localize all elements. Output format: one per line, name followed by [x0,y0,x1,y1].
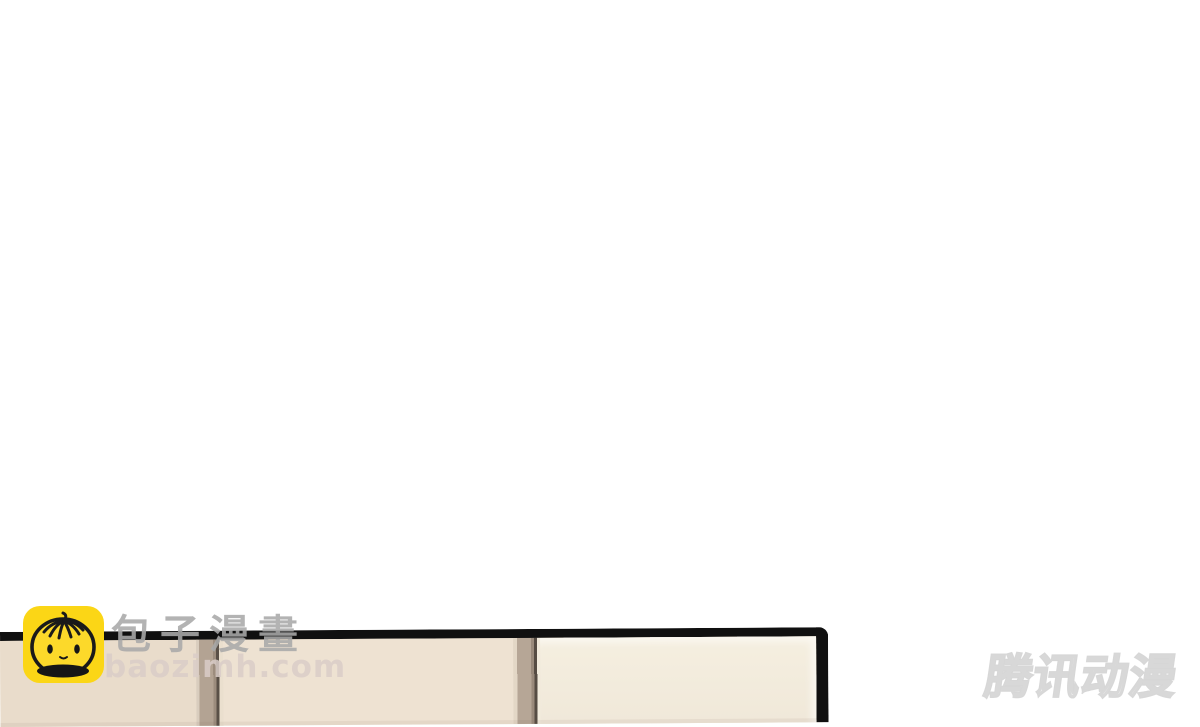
baozi-bun-icon [23,606,104,683]
panel-divider-right [513,638,540,724]
publisher-watermark: 腾讯动漫 [981,638,1183,707]
site-domain-watermark: baozimh.com [104,649,346,685]
webtoon-page: 包子漫畫 baozimh.com 腾 [0,0,1200,711]
baozi-logo [23,606,104,683]
